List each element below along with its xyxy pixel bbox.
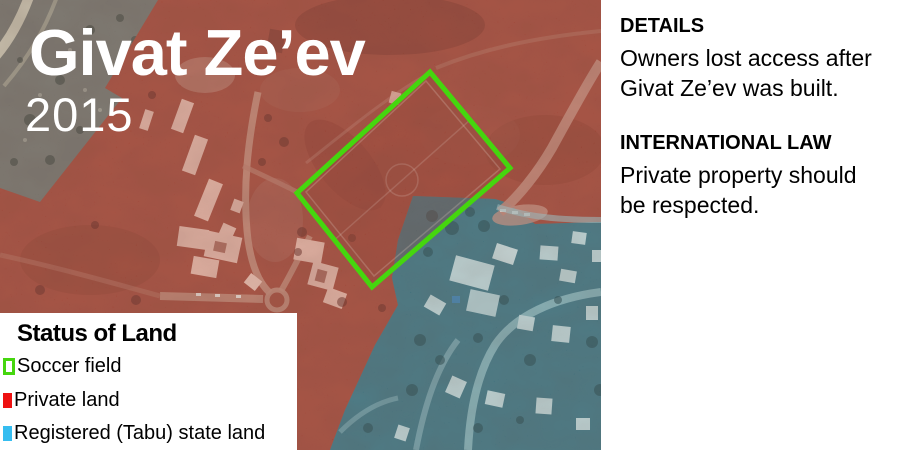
side-panel: DETAILS Owners lost access after Givat Z… bbox=[601, 0, 900, 450]
legend-label-soccer-field: Soccer field bbox=[17, 357, 122, 375]
legend-label-state-land: Registered (Tabu) state land bbox=[14, 424, 265, 442]
legend-item-state-land: Registered (Tabu) state land bbox=[3, 424, 265, 442]
private-land-swatch-icon bbox=[3, 393, 12, 408]
details-heading: DETAILS bbox=[620, 14, 892, 38]
legend-item-private-land: Private land bbox=[3, 391, 120, 409]
state-land-swatch-icon bbox=[3, 426, 12, 441]
legend-box: Status of Land Soccer field Private land… bbox=[0, 313, 297, 450]
international-law-body: Private property should be respected. bbox=[620, 160, 892, 220]
details-body: Owners lost access after Givat Ze’ev was… bbox=[620, 43, 892, 103]
map-year: 2015 bbox=[25, 91, 134, 138]
legend-item-soccer-field: Soccer field bbox=[3, 357, 122, 375]
legend-title: Status of Land bbox=[17, 320, 177, 348]
soccer-field-swatch-icon bbox=[3, 358, 15, 375]
international-law-heading: INTERNATIONAL LAW bbox=[620, 131, 892, 155]
legend-label-private-land: Private land bbox=[14, 391, 120, 409]
map-title: Givat Ze’ev bbox=[29, 20, 365, 85]
infographic-canvas: Givat Ze’ev 2015 Status of Land Soccer f… bbox=[0, 0, 900, 450]
